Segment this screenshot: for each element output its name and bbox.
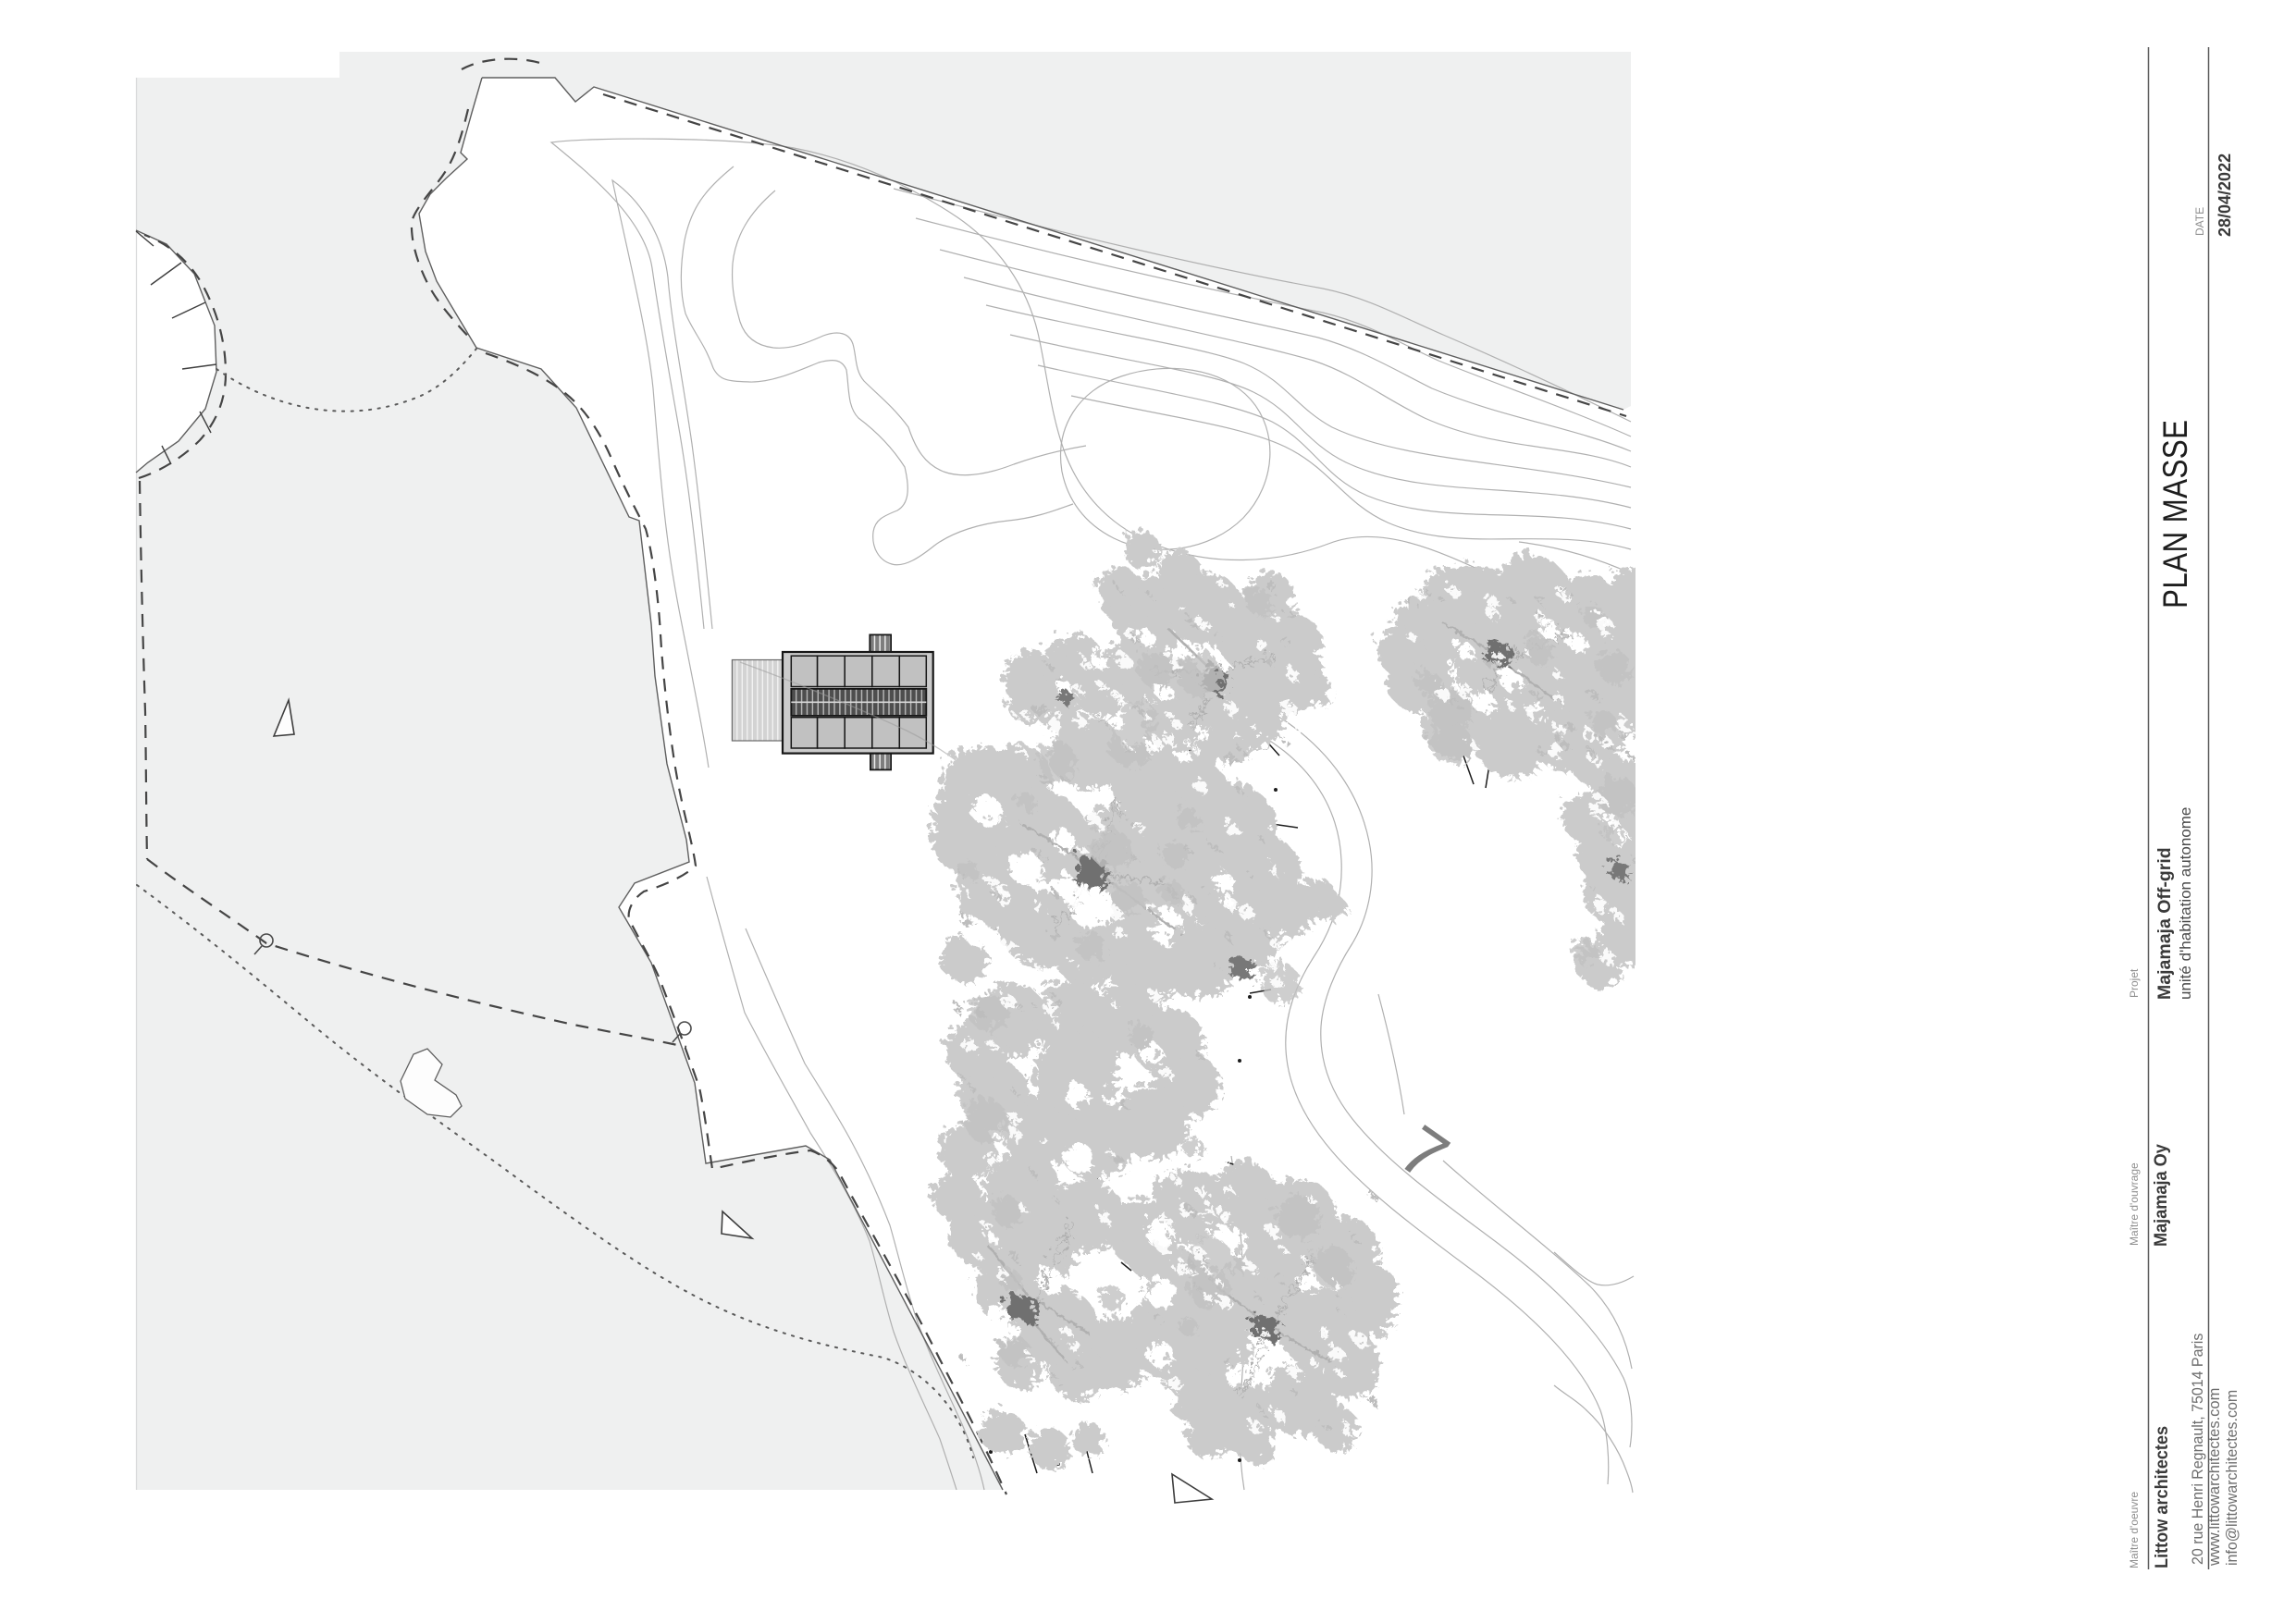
svg-text:Majamaja Oy: Majamaja Oy — [2150, 1144, 2170, 1247]
svg-text:28/04/2022: 28/04/2022 — [2216, 154, 2234, 237]
svg-text:7: 7 — [1386, 1111, 1462, 1197]
svg-text:Maître d'ouvrage: Maître d'ouvrage — [2128, 1162, 2141, 1246]
svg-text:Maître d'oeuvre: Maître d'oeuvre — [2128, 1492, 2141, 1568]
svg-text:Littow architectes: Littow architectes — [2151, 1426, 2171, 1568]
svg-text:www.littowarchitectes.com: www.littowarchitectes.com — [2205, 1388, 2223, 1567]
svg-text:Projet: Projet — [2128, 968, 2141, 998]
svg-text:Majamaja Off-grid: Majamaja Off-grid — [2154, 847, 2175, 1000]
svg-text:unité d'habitation autonome: unité d'habitation autonome — [2177, 807, 2194, 1000]
svg-text:20 rue Henri Regnault, 75014 P: 20 rue Henri Regnault, 75014 Paris — [2190, 1334, 2207, 1565]
svg-text:info@littowarchitectes.com: info@littowarchitectes.com — [2224, 1390, 2241, 1566]
svg-text:DATE: DATE — [2193, 207, 2206, 236]
svg-text:PLAN MASSE: PLAN MASSE — [2157, 420, 2195, 609]
